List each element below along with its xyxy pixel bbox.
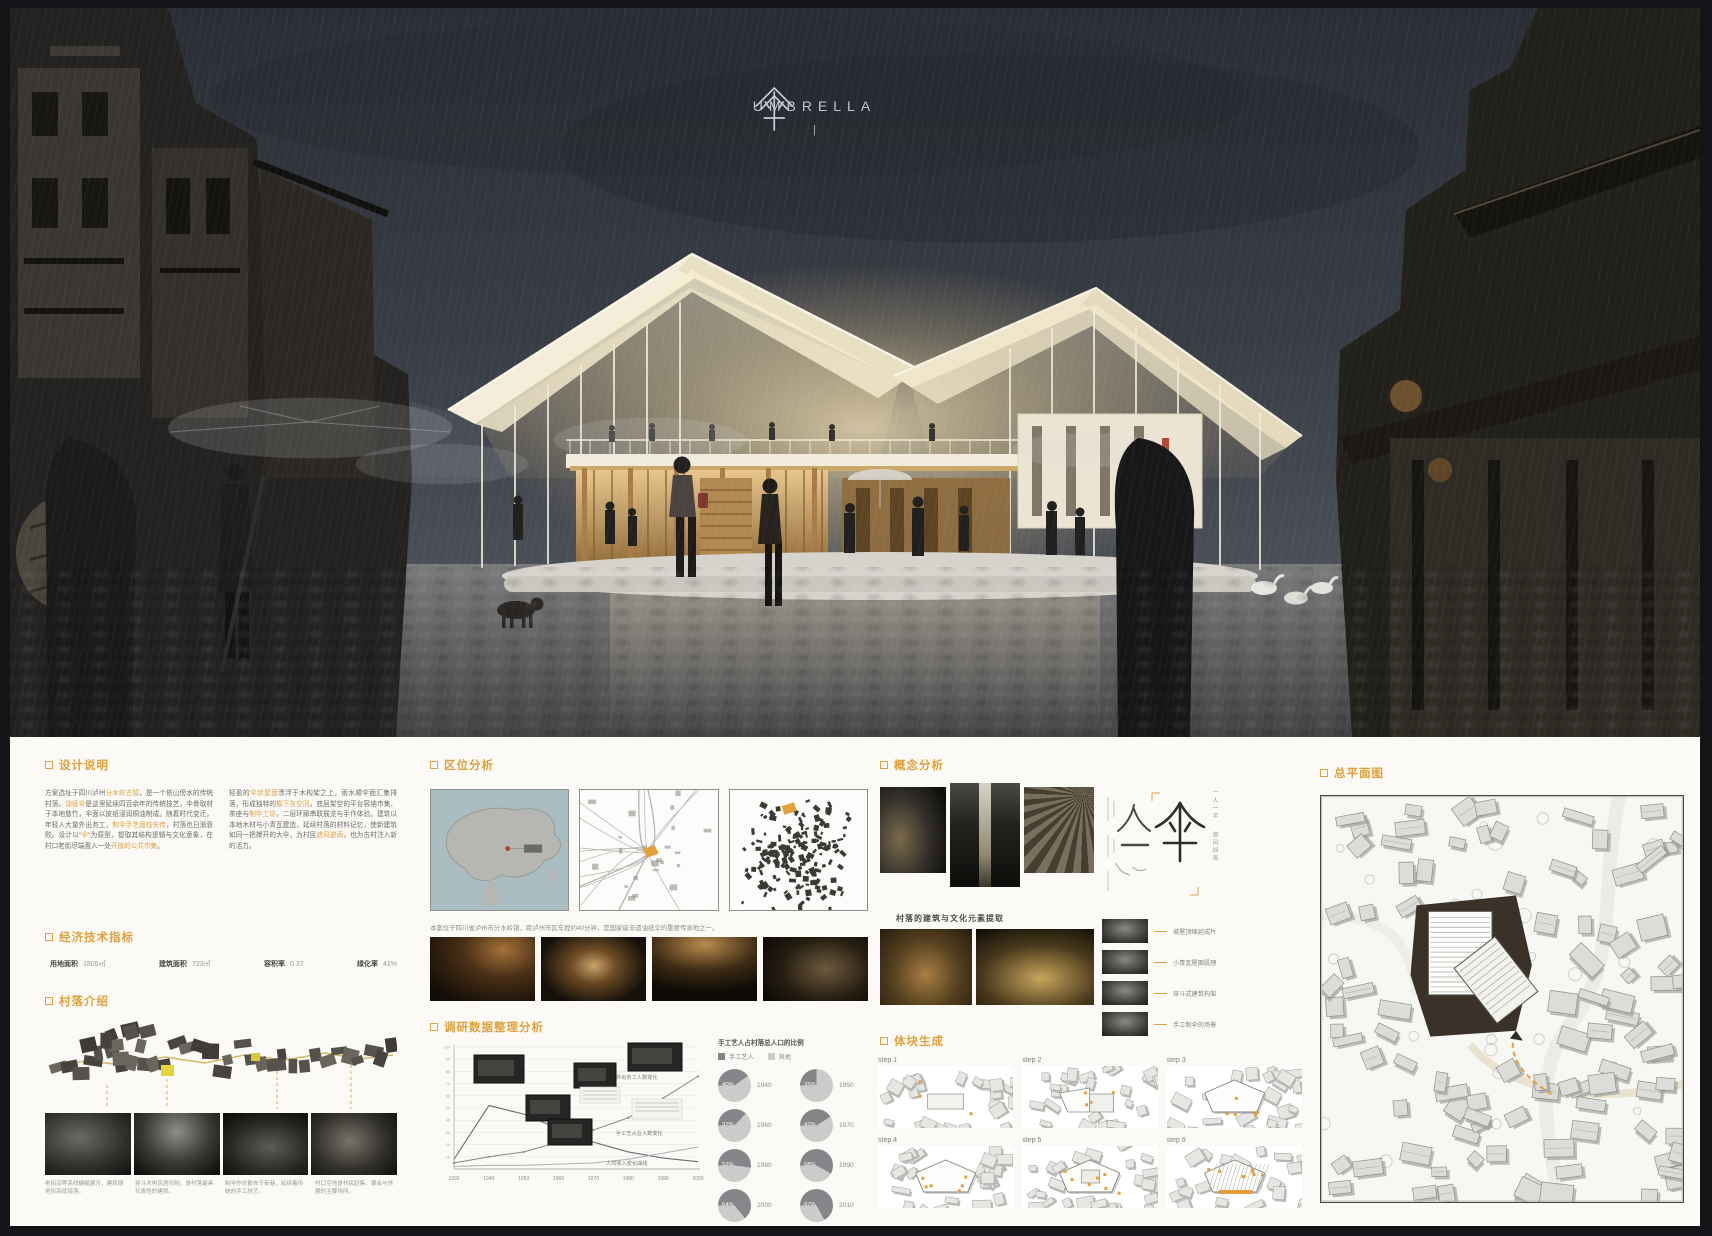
road-network-map xyxy=(579,789,718,911)
paper-umbrella-photo xyxy=(541,937,646,1001)
legend-item: 手工艺人 xyxy=(718,1052,754,1061)
section-title: 总平面图 xyxy=(1334,765,1384,781)
section-header-location: 区位分析 xyxy=(430,757,494,773)
reference-item: 坡屋顶绵延成片 xyxy=(1102,919,1298,943)
massing-step: step 4 xyxy=(878,1137,1013,1208)
connector-line xyxy=(1154,993,1167,994)
pie-chart: 41% xyxy=(800,1109,833,1142)
svg-text:60: 60 xyxy=(446,1094,450,1098)
village-photo-strip xyxy=(45,1113,397,1175)
header-square-icon xyxy=(880,761,888,769)
pie-chart: 52% xyxy=(718,1149,751,1182)
ren-character-icon xyxy=(1118,805,1150,831)
location-caption: 本案位于四川省泸州市分水岭镇，距泸州市区车程约40分钟，是国家级非遗油纸伞的重要… xyxy=(430,923,868,932)
massing-step: step 6 xyxy=(1167,1137,1302,1208)
header-square-icon xyxy=(430,1023,438,1031)
figure-ground-map xyxy=(729,789,868,911)
pie-item: 25%1950 xyxy=(800,1069,868,1102)
section-title: 调研数据整理分析 xyxy=(444,1019,544,1035)
body-text: 方案选址于四川泸州 xyxy=(45,790,106,797)
artisan-photo xyxy=(763,937,868,1001)
pie-chart: 40% xyxy=(718,1069,751,1102)
svg-text:50: 50 xyxy=(446,1107,450,1111)
section-title: 概念分析 xyxy=(894,757,944,773)
reference-label: 坡屋顶绵延成片 xyxy=(1173,927,1216,936)
massing-diagram xyxy=(878,1146,1013,1208)
village-photo xyxy=(223,1113,309,1175)
indicator: 绿化率41% xyxy=(357,959,397,969)
svg-text:90: 90 xyxy=(446,1058,450,1062)
legend-item: 其他 xyxy=(768,1052,791,1061)
connector-line xyxy=(1154,931,1167,932)
massing-diagram xyxy=(1167,1146,1302,1208)
analysis-panel: 设计说明 方案选址于四川泸州分水岭古镇，是一个依山傍水的传统村落。油纸伞是这里延… xyxy=(10,737,1700,1226)
highlighted-text: 伞状屋面 xyxy=(250,790,278,797)
section-title: 经济技术指标 xyxy=(59,929,134,945)
section-header-concept: 概念分析 xyxy=(880,757,944,773)
pie-chart-block: 手工艺人占村落总人口的比例 手工艺人 其他 40%1940 25%1950 37… xyxy=(718,1037,868,1222)
san-character-icon xyxy=(1156,803,1204,861)
china-map xyxy=(430,789,569,911)
foreground-figure-right xyxy=(1115,438,1194,737)
massing-diagram xyxy=(878,1066,1013,1128)
svg-text:2000: 2000 xyxy=(692,1176,703,1182)
umbrella-calligraphy xyxy=(1102,787,1206,909)
section-header-indicators: 经济技术指标 xyxy=(45,929,134,945)
location-maps xyxy=(430,789,868,911)
pie-item: 40%1940 xyxy=(718,1069,786,1102)
step-label: step 2 xyxy=(1022,1057,1157,1064)
section-title: 村落介绍 xyxy=(59,993,109,1009)
section-header-design: 设计说明 xyxy=(45,757,109,773)
foreground-figure-left xyxy=(46,438,136,737)
svg-text:70: 70 xyxy=(446,1082,450,1086)
highlighted-text: 油纸伞 xyxy=(65,801,85,808)
pie-grid: 40%1940 25%1950 37%1960 41%1970 52%1980 … xyxy=(718,1069,868,1222)
highlighted-text: 分水岭古镇 xyxy=(106,790,140,797)
svg-text:外出务工人数变化: 外出务工人数变化 xyxy=(616,1073,658,1081)
calligraphy-note: 一人一伞 · 遮风挡雨 xyxy=(1210,789,1219,909)
section-header-massing: 体块生成 xyxy=(880,1033,944,1049)
reference-label: 小青瓦屋面肌理 xyxy=(1173,958,1216,967)
element-reference-list: 坡屋顶绵延成片 小青瓦屋面肌理 穿斗式建筑构架 手工制伞的场景 xyxy=(1102,919,1298,1043)
massing-step: step 3 xyxy=(1167,1057,1302,1128)
section-title: 设计说明 xyxy=(59,757,109,773)
design-text-col1: 方案选址于四川泸州分水岭古镇，是一个依山傍水的传统村落。油纸伞是这里延续四百余年… xyxy=(45,789,213,853)
reference-item: 手工制伞的场景 xyxy=(1102,1012,1298,1036)
reference-photo xyxy=(1102,919,1148,943)
village-axon-map xyxy=(45,1013,397,1109)
svg-text:20: 20 xyxy=(446,1143,450,1147)
massing-steps: step 1 step 2 step 3 step 4 step 5 step … xyxy=(878,1057,1302,1208)
village-captions: 老街沿等高线蜿蜒展开，建筑随地形高低错落。 穿斗木构民居形制，是村落最具代表性的… xyxy=(45,1181,397,1196)
master-site-plan xyxy=(1320,795,1684,1203)
column-siteplan: 总平面图 xyxy=(1310,737,1696,1226)
pie-item: 58%1990 xyxy=(800,1149,868,1182)
sepia-photo-row xyxy=(430,937,868,1001)
header-square-icon xyxy=(430,761,438,769)
svg-text:100: 100 xyxy=(444,1046,450,1050)
pie-legend: 手工艺人 其他 xyxy=(718,1052,868,1061)
header-square-icon xyxy=(45,997,53,1005)
svg-text:1980: 1980 xyxy=(623,1176,634,1182)
step-label: step 3 xyxy=(1167,1057,1302,1064)
indicator: 建筑面积723㎡ xyxy=(159,959,211,969)
header-square-icon xyxy=(1320,769,1328,777)
highlighted-text: 制伞工坊 xyxy=(249,811,276,818)
pie-chart: 67% xyxy=(800,1189,833,1222)
header-square-icon xyxy=(880,1037,888,1045)
massing-diagram xyxy=(1022,1146,1157,1208)
project-site xyxy=(1411,895,1538,1036)
legend-swatch-icon xyxy=(768,1053,775,1060)
umbrella-craft-photo xyxy=(430,937,535,1001)
pie-item: 52%1980 xyxy=(718,1149,786,1182)
indicator: 容积率0.37 xyxy=(264,959,304,969)
design-text-col2: 轻盈的伞状屋面漂浮于木构架之上，雨水顺伞面汇集排落，形成独特的檐下灰空间。底层架… xyxy=(229,789,397,853)
pie-chart: 64% xyxy=(718,1189,751,1222)
concept-photo: 油纸伞 xyxy=(880,787,946,873)
concept-photo: 悬挑吊脚 xyxy=(950,783,1020,887)
step-label: step 6 xyxy=(1167,1137,1302,1144)
massing-diagram xyxy=(1167,1066,1302,1128)
photo-caption: 穿斗木构民居形制，是村落最具代表性的建筑。 xyxy=(135,1181,217,1196)
highlighted-text: 遮风避雨 xyxy=(316,832,343,839)
step-label: step 4 xyxy=(878,1137,1013,1144)
svg-text:1990: 1990 xyxy=(658,1176,669,1182)
svg-text:1960: 1960 xyxy=(553,1176,564,1182)
highlighted-text: 制伞手艺面临失传 xyxy=(112,822,166,829)
reference-item: 穿斗式建筑构架 xyxy=(1102,981,1298,1005)
legend-swatch-icon xyxy=(718,1053,725,1060)
reference-label: 穿斗式建筑构架 xyxy=(1173,989,1216,998)
header-square-icon xyxy=(45,761,53,769)
pie-chart: 37% xyxy=(718,1109,751,1142)
svg-text:1940: 1940 xyxy=(483,1176,494,1182)
svg-text:40: 40 xyxy=(446,1119,450,1123)
svg-text:80: 80 xyxy=(446,1070,450,1074)
photo-caption: 村口空地是村民赶集、聚会与休憩的主要场所。 xyxy=(315,1181,397,1196)
pie-chart: 58% xyxy=(800,1149,833,1182)
connector-line xyxy=(1154,962,1167,963)
massing-step: step 2 xyxy=(1022,1057,1157,1128)
column-concept-massing: 概念分析 油纸伞 悬挑吊脚 制伞工艺 村落的建筑与文化元素提取 老街巷道 市集灯… xyxy=(878,737,1302,1226)
workshop-photo xyxy=(652,937,757,1001)
village-photo xyxy=(45,1113,131,1175)
market-photo: 市集灯火 xyxy=(976,929,1094,1005)
indicator: 用地面积1805㎡ xyxy=(50,959,106,969)
highlighted-text: 开放的公共市集 xyxy=(111,843,157,850)
massing-step: step 5 xyxy=(1022,1137,1157,1208)
body-text: 。 xyxy=(157,843,164,850)
pie-title: 手工艺人占村落总人口的比例 xyxy=(718,1037,868,1047)
pie-item: 41%1970 xyxy=(800,1109,868,1142)
collage-caption: 村落的建筑与文化元素提取 xyxy=(896,913,1004,924)
village-photo xyxy=(134,1113,220,1175)
umbrella-character-icon xyxy=(753,84,797,138)
photo-caption: 老街沿等高线蜿蜒展开，建筑随地形高低错落。 xyxy=(45,1181,127,1196)
reference-photo xyxy=(1102,981,1148,1005)
svg-text:1970: 1970 xyxy=(588,1176,599,1182)
column-location-survey: 区位分析 本案位于四川省泸州市分水岭镇，距泸州市区车程约40分钟，是国家级非遗油… xyxy=(430,737,868,1226)
column-design: 设计说明 方案选址于四川泸州分水岭古镇，是一个依山傍水的传统村落。油纸伞是这里延… xyxy=(45,737,397,1226)
svg-text:30: 30 xyxy=(446,1131,450,1135)
photo-caption: 制伞作坊散布于街巷，延续着传统的手工技艺。 xyxy=(225,1181,307,1196)
reference-photo xyxy=(1102,950,1148,974)
reference-item: 小青瓦屋面肌理 xyxy=(1102,950,1298,974)
svg-text:人均收入变化曲线: 人均收入变化曲线 xyxy=(606,1159,648,1167)
street-photo: 老街巷道 xyxy=(880,929,972,1005)
population-line-chart: 1020304050607080901001930194019501960197… xyxy=(430,1039,706,1195)
connector-line xyxy=(1154,1024,1167,1025)
pie-item: 37%1960 xyxy=(718,1109,786,1142)
highlighted-text: 檐下灰空间 xyxy=(276,801,310,808)
umbrella-fan-photo: 制伞工艺 xyxy=(1024,787,1094,873)
section-header-survey: 调研数据整理分析 xyxy=(430,1019,544,1035)
section-title: 体块生成 xyxy=(894,1033,944,1049)
project-logo: UMBRELLA | xyxy=(753,84,876,136)
village-photo xyxy=(311,1113,397,1175)
svg-text:手工艺从业人数变化: 手工艺从业人数变化 xyxy=(616,1129,663,1137)
svg-text:1950: 1950 xyxy=(518,1176,529,1182)
pie-chart: 25% xyxy=(800,1069,833,1102)
lantern-icon xyxy=(1428,458,1452,482)
step-label: step 1 xyxy=(878,1057,1013,1064)
section-header-village: 村落介绍 xyxy=(45,993,109,1009)
section-header-siteplan: 总平面图 xyxy=(1320,765,1384,781)
hero-rendering: UMBRELLA | xyxy=(10,8,1700,737)
reference-photo xyxy=(1102,1012,1148,1036)
reference-label: 手工制伞的场景 xyxy=(1173,1020,1216,1029)
pie-item: 67%2010 xyxy=(800,1189,868,1222)
svg-text:1930: 1930 xyxy=(448,1176,459,1182)
section-title: 区位分析 xyxy=(444,757,494,773)
header-square-icon xyxy=(45,933,53,941)
svg-text:10: 10 xyxy=(446,1155,450,1159)
massing-diagram xyxy=(1022,1066,1157,1128)
pie-item: 64%2000 xyxy=(718,1189,786,1222)
body-text: 轻盈的 xyxy=(229,790,250,797)
presentation-board: UMBRELLA | 设计说明 方案选址于四川泸州分水岭古镇，是一个依山傍水的传… xyxy=(10,8,1700,1226)
step-label: step 5 xyxy=(1022,1137,1157,1144)
indicator-row: 用地面积1805㎡ 建筑面积723㎡ 容积率0.37 绿化率41% xyxy=(45,959,397,969)
massing-step: step 1 xyxy=(878,1057,1013,1128)
